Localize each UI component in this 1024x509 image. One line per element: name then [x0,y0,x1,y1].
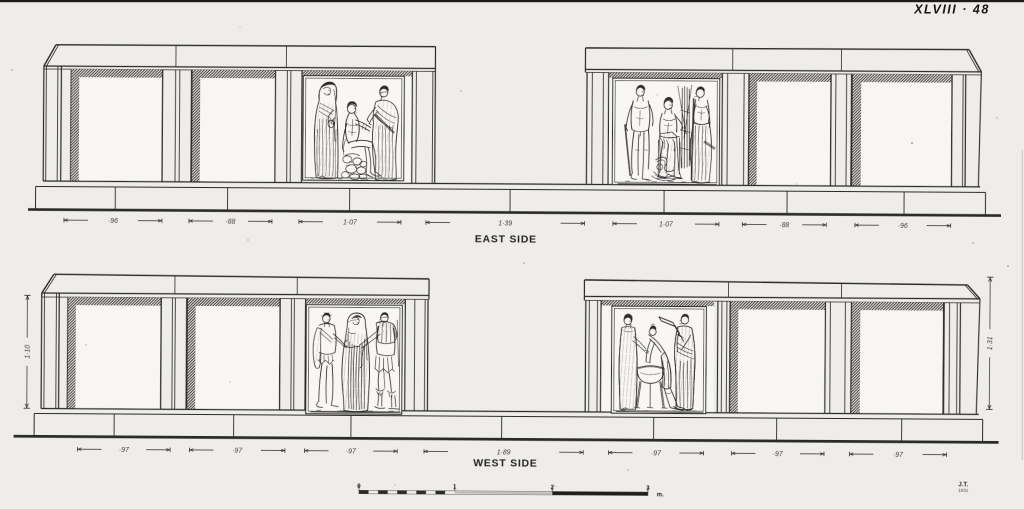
svg-text:1·07: 1·07 [659,221,674,228]
svg-text:WEST SIDE: WEST SIDE [473,458,537,469]
svg-text:·88: ·88 [225,219,235,226]
svg-text:XLVIII · 48: XLVIII · 48 [913,3,990,17]
svg-text:·97: ·97 [651,450,662,457]
svg-text:1·39: 1·39 [498,220,512,227]
svg-text:·97: ·97 [346,448,357,455]
svg-text:1·07: 1·07 [343,219,358,226]
svg-text:m.: m. [657,492,664,498]
svg-text:1931: 1931 [958,488,969,493]
svg-text:·97: ·97 [893,452,904,459]
svg-text:1·89: 1·89 [497,449,511,456]
svg-text:EAST SIDE: EAST SIDE [475,234,537,245]
svg-text:·88: ·88 [779,222,789,229]
svg-text:·97: ·97 [119,447,130,454]
svg-text:·97: ·97 [773,451,784,458]
svg-text:·96: ·96 [898,223,908,230]
svg-text:·96: ·96 [108,218,118,225]
svg-text:·97: ·97 [232,448,243,455]
svg-text:1·31: 1·31 [987,336,994,350]
svg-text:1·10: 1·10 [25,345,32,359]
